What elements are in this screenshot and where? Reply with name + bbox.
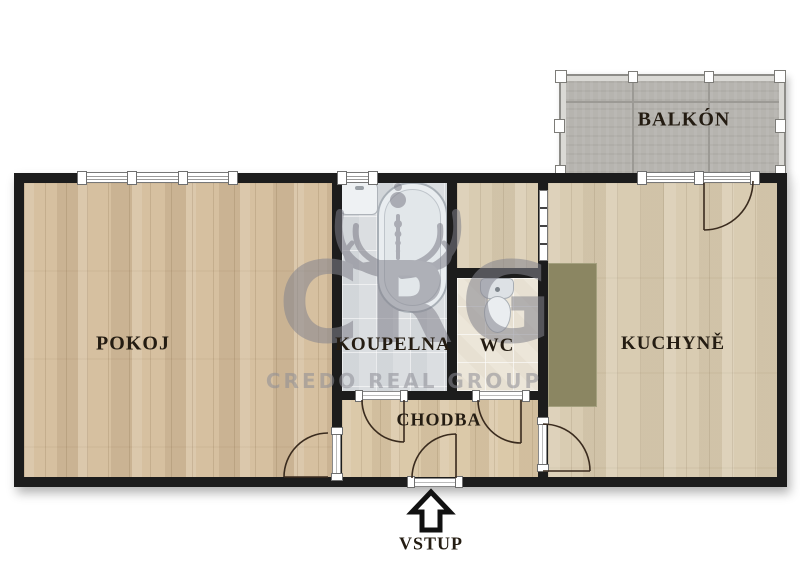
- balcony-post: [704, 71, 714, 83]
- sink-tap: [355, 186, 364, 190]
- door-post: [472, 390, 480, 402]
- door-post: [537, 417, 549, 425]
- pantry-opening-tick: [540, 243, 547, 245]
- kitchen-counter: [548, 263, 597, 407]
- door-post: [331, 427, 343, 435]
- door-post: [407, 476, 415, 488]
- wall-right: [777, 173, 787, 487]
- room-label-balkon: BALKÓN: [638, 109, 731, 132]
- balcony-post: [774, 70, 786, 83]
- balcony-post: [628, 71, 638, 83]
- room-label-chodba: CHODBA: [396, 410, 481, 431]
- door-post: [522, 390, 530, 402]
- wall-wc-top: [447, 268, 548, 278]
- balcony-grid-line: [566, 101, 779, 103]
- sink: [340, 182, 378, 215]
- balcony-door-leafframe: [704, 172, 750, 183]
- window-post: [127, 171, 137, 185]
- pantry-nook-floor: [457, 182, 538, 268]
- balcony-post: [555, 70, 567, 83]
- window-post: [178, 171, 188, 185]
- room-label-pokoj: POKOJ: [96, 333, 170, 356]
- wall-bottom: [14, 477, 787, 487]
- window-post: [750, 171, 760, 185]
- balcony-post: [775, 119, 786, 133]
- window-post: [337, 171, 347, 185]
- door-post: [537, 464, 549, 472]
- door-opening: [415, 478, 455, 487]
- bathtub-inner: [384, 189, 441, 306]
- window-post: [637, 171, 647, 185]
- room-label-kuchyne: KUCHYNĚ: [621, 333, 725, 355]
- balcony-grid-line: [632, 81, 634, 177]
- wall-left: [14, 173, 24, 487]
- balcony-post: [554, 119, 565, 133]
- window-glass: [347, 172, 368, 183]
- pantry-opening-tick: [540, 225, 547, 227]
- window-glass: [188, 172, 228, 183]
- door-post: [455, 476, 463, 488]
- door-post: [331, 473, 343, 481]
- door-post: [400, 390, 408, 402]
- window-glass: [87, 172, 127, 183]
- window-post: [694, 171, 704, 185]
- pantry-opening-tick: [540, 207, 547, 209]
- wall-bath-wc: [447, 173, 457, 400]
- room-pokoj-floor: [24, 182, 332, 477]
- room-label-koupelna: KOUPELNA: [335, 334, 451, 356]
- door-opening: [480, 391, 522, 400]
- toilet-flush-button: [495, 287, 500, 292]
- window-post: [77, 171, 87, 185]
- pantry-opening: [539, 190, 548, 261]
- bathtub: [377, 182, 448, 313]
- door-opening: [363, 391, 400, 400]
- entrance-label: VSTUP: [399, 534, 463, 555]
- floor-plan: CRG CREDO REAL GROUP POKOJ KOUPELNA WC K…: [0, 0, 800, 566]
- door-opening: [332, 434, 341, 474]
- window-post: [368, 171, 378, 185]
- room-label-wc: WC: [480, 335, 515, 357]
- door-opening: [538, 424, 547, 465]
- window-glass: [647, 172, 694, 183]
- window-post: [228, 171, 238, 185]
- door-post: [355, 390, 363, 402]
- window-glass: [137, 172, 178, 183]
